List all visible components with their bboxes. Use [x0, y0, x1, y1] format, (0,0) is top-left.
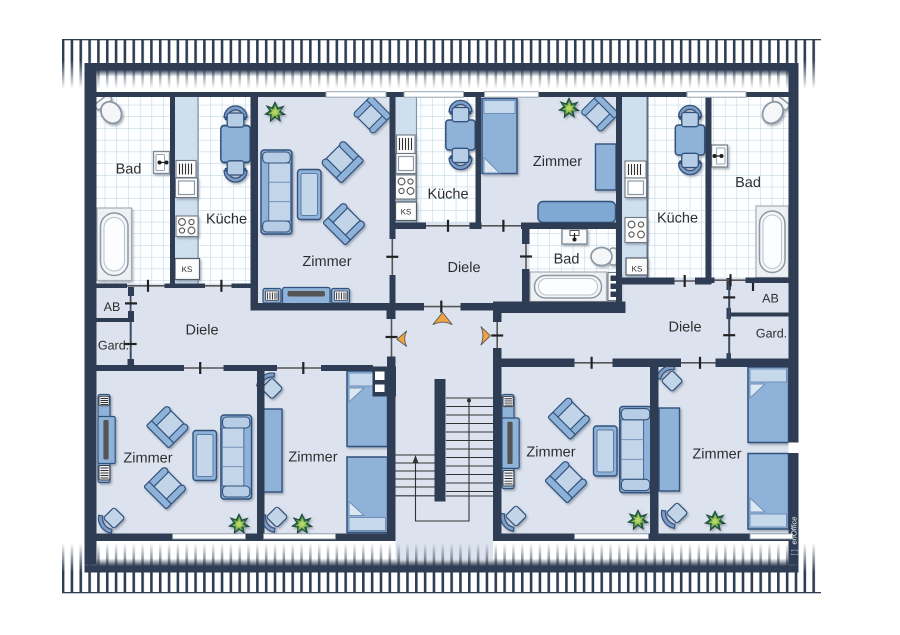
svg-text:Küche: Küche	[206, 212, 247, 228]
svg-text:Zimmer: Zimmer	[526, 445, 575, 461]
svg-text:Gard.: Gard.	[98, 339, 129, 353]
svg-text:Zimmer: Zimmer	[692, 447, 741, 463]
svg-text:KS: KS	[632, 265, 643, 274]
svg-text:Zimmer: Zimmer	[533, 154, 582, 170]
svg-text:enOffice: enOffice	[790, 517, 799, 545]
svg-text:KS: KS	[182, 265, 193, 274]
svg-text:AB: AB	[104, 300, 121, 314]
svg-text:Küche: Küche	[657, 211, 698, 227]
svg-text:Bad: Bad	[735, 175, 761, 191]
svg-text:AB: AB	[762, 292, 779, 306]
svg-text:Diele: Diele	[447, 260, 480, 276]
svg-text:Diele: Diele	[185, 323, 218, 339]
svg-text:Bad: Bad	[116, 162, 142, 178]
svg-text:Zimmer: Zimmer	[288, 450, 337, 466]
svg-text:Zimmer: Zimmer	[123, 451, 172, 467]
svg-text:Bad: Bad	[554, 252, 580, 268]
svg-text:Zimmer: Zimmer	[302, 254, 351, 270]
svg-text:Diele: Diele	[668, 320, 701, 336]
svg-text:KS: KS	[401, 208, 412, 217]
svg-text:Gard.: Gard.	[756, 327, 787, 341]
svg-text:Küche: Küche	[427, 187, 468, 203]
